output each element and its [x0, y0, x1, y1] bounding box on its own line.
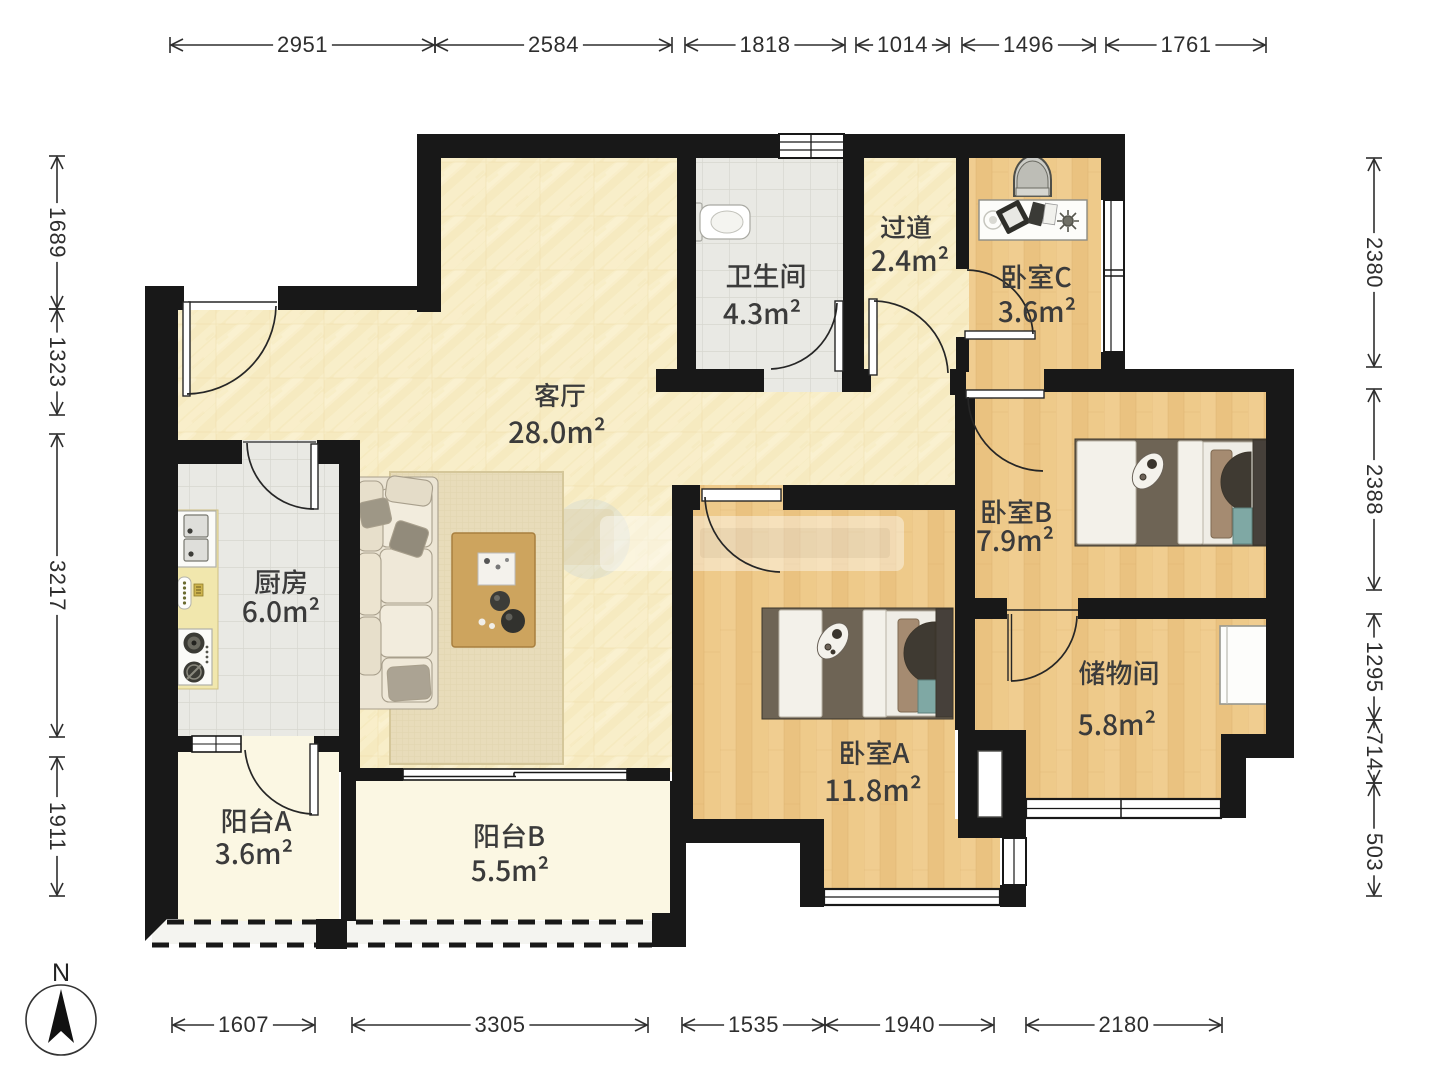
svg-text:2388: 2388	[1362, 464, 1387, 515]
svg-text:1014: 1014	[877, 32, 928, 57]
svg-text:1761: 1761	[1161, 32, 1212, 57]
svg-text:2951: 2951	[277, 32, 328, 57]
svg-text:1535: 1535	[728, 1012, 779, 1037]
svg-text:1818: 1818	[740, 32, 791, 57]
svg-text:2584: 2584	[528, 32, 579, 57]
svg-text:3217: 3217	[45, 560, 70, 611]
svg-text:1496: 1496	[1003, 32, 1054, 57]
svg-text:3305: 3305	[475, 1012, 526, 1037]
svg-text:714: 714	[1362, 732, 1387, 770]
svg-text:1323: 1323	[45, 337, 70, 388]
svg-text:1689: 1689	[45, 207, 70, 258]
svg-text:503: 503	[1362, 833, 1387, 871]
svg-text:1911: 1911	[45, 802, 70, 851]
svg-text:1940: 1940	[884, 1012, 935, 1037]
svg-text:2180: 2180	[1099, 1012, 1150, 1037]
svg-text:1607: 1607	[218, 1012, 269, 1037]
svg-text:N: N	[52, 959, 70, 987]
svg-text:2380: 2380	[1362, 237, 1387, 288]
svg-text:1295: 1295	[1362, 642, 1387, 693]
